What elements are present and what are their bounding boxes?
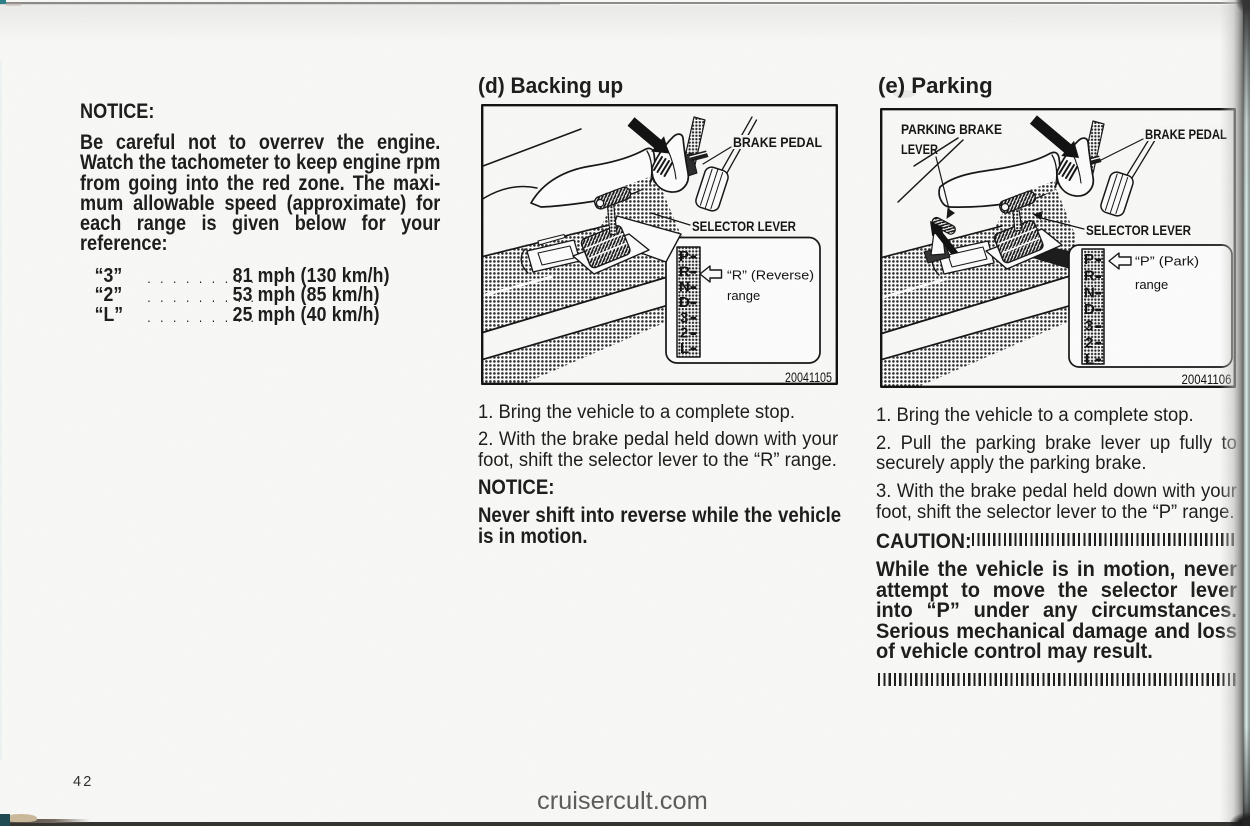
svg-text:D: D [1084,301,1095,318]
svg-text:“R” (Reverse): “R” (Reverse) [727,268,814,283]
svg-text:PARKING BRAKE: PARKING BRAKE [901,122,1002,137]
svg-text:range: range [727,288,760,303]
svg-text:R: R [1084,268,1095,285]
svg-text:range: range [1135,277,1168,292]
svg-text:2: 2 [1085,334,1093,351]
svg-text:3: 3 [1085,318,1093,335]
svg-text:BRAKE PEDAL: BRAKE PEDAL [733,135,822,150]
svg-text:P: P [1084,251,1094,268]
svg-text:SELECTOR LEVER: SELECTOR LEVER [1086,223,1191,238]
svg-text:L: L [1085,351,1094,368]
svg-text:L: L [680,340,689,357]
svg-text:BRAKE PEDAL: BRAKE PEDAL [1145,127,1227,142]
svg-text:N: N [1084,284,1095,301]
svg-text:SELECTOR LEVER: SELECTOR LEVER [692,219,796,234]
svg-text:LEVER: LEVER [901,142,938,157]
svg-text:“P” (Park): “P” (Park) [1135,254,1199,269]
